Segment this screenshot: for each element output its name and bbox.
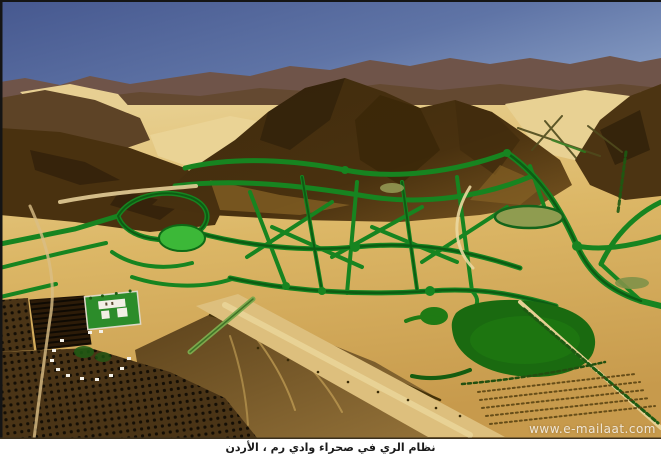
green-field [159, 225, 205, 251]
watermark: www.e-mailaat.com [529, 422, 656, 436]
photo-illustration [0, 0, 661, 439]
photo-caption: نظام الري في صحراء وادي رم ، الأردن [0, 439, 661, 456]
page: www.e-mailaat.com نظام الري في صحراء واد… [0, 0, 661, 456]
aerial-photo: www.e-mailaat.com [0, 0, 661, 439]
